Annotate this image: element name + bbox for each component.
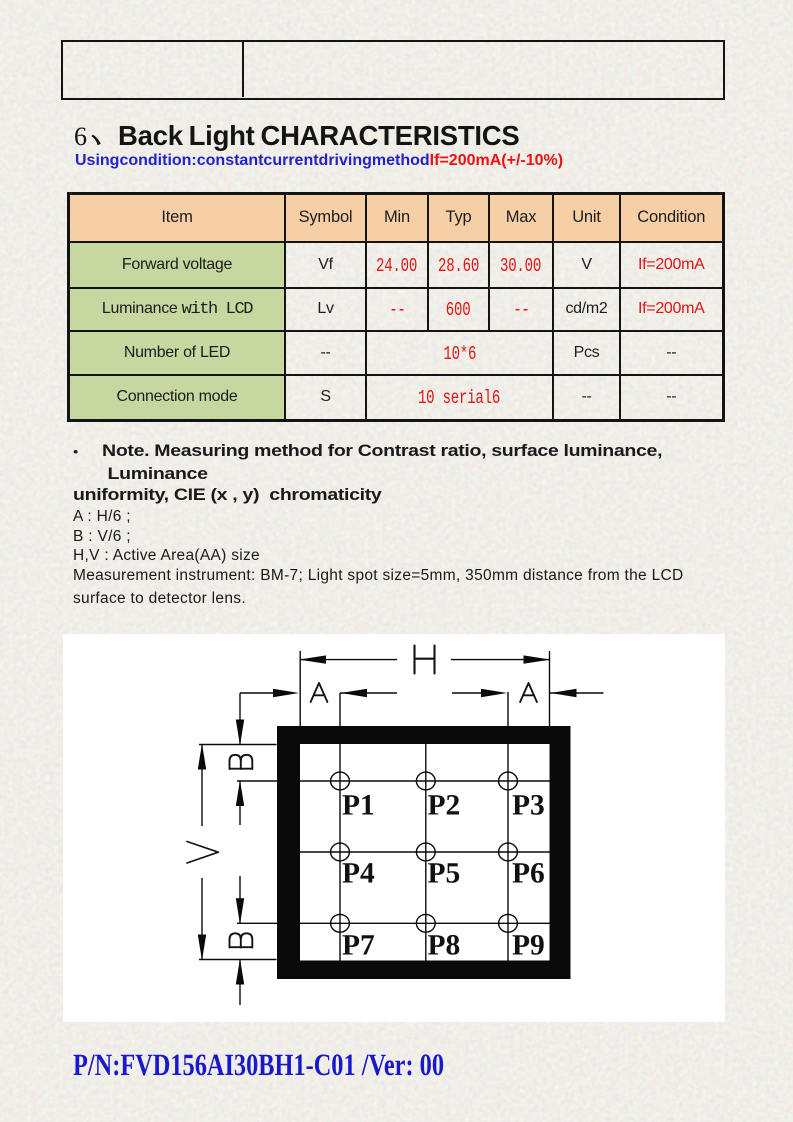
- svg-text:P/N:FVD156AI30BH1-C01 /Ver: 00: P/N:FVD156AI30BH1-C01 /Ver: 00: [73, 1047, 444, 1082]
- svg-text:P3: P3: [512, 790, 545, 822]
- svg-text:P2: P2: [428, 790, 461, 822]
- svg-text:P6: P6: [512, 858, 545, 890]
- svg-text:P4: P4: [342, 858, 375, 890]
- svg-text:P1: P1: [342, 790, 375, 822]
- svg-text:P7: P7: [342, 930, 375, 962]
- svg-text:P5: P5: [428, 858, 461, 890]
- svg-text:P9: P9: [512, 930, 545, 962]
- svg-text:P8: P8: [428, 930, 461, 962]
